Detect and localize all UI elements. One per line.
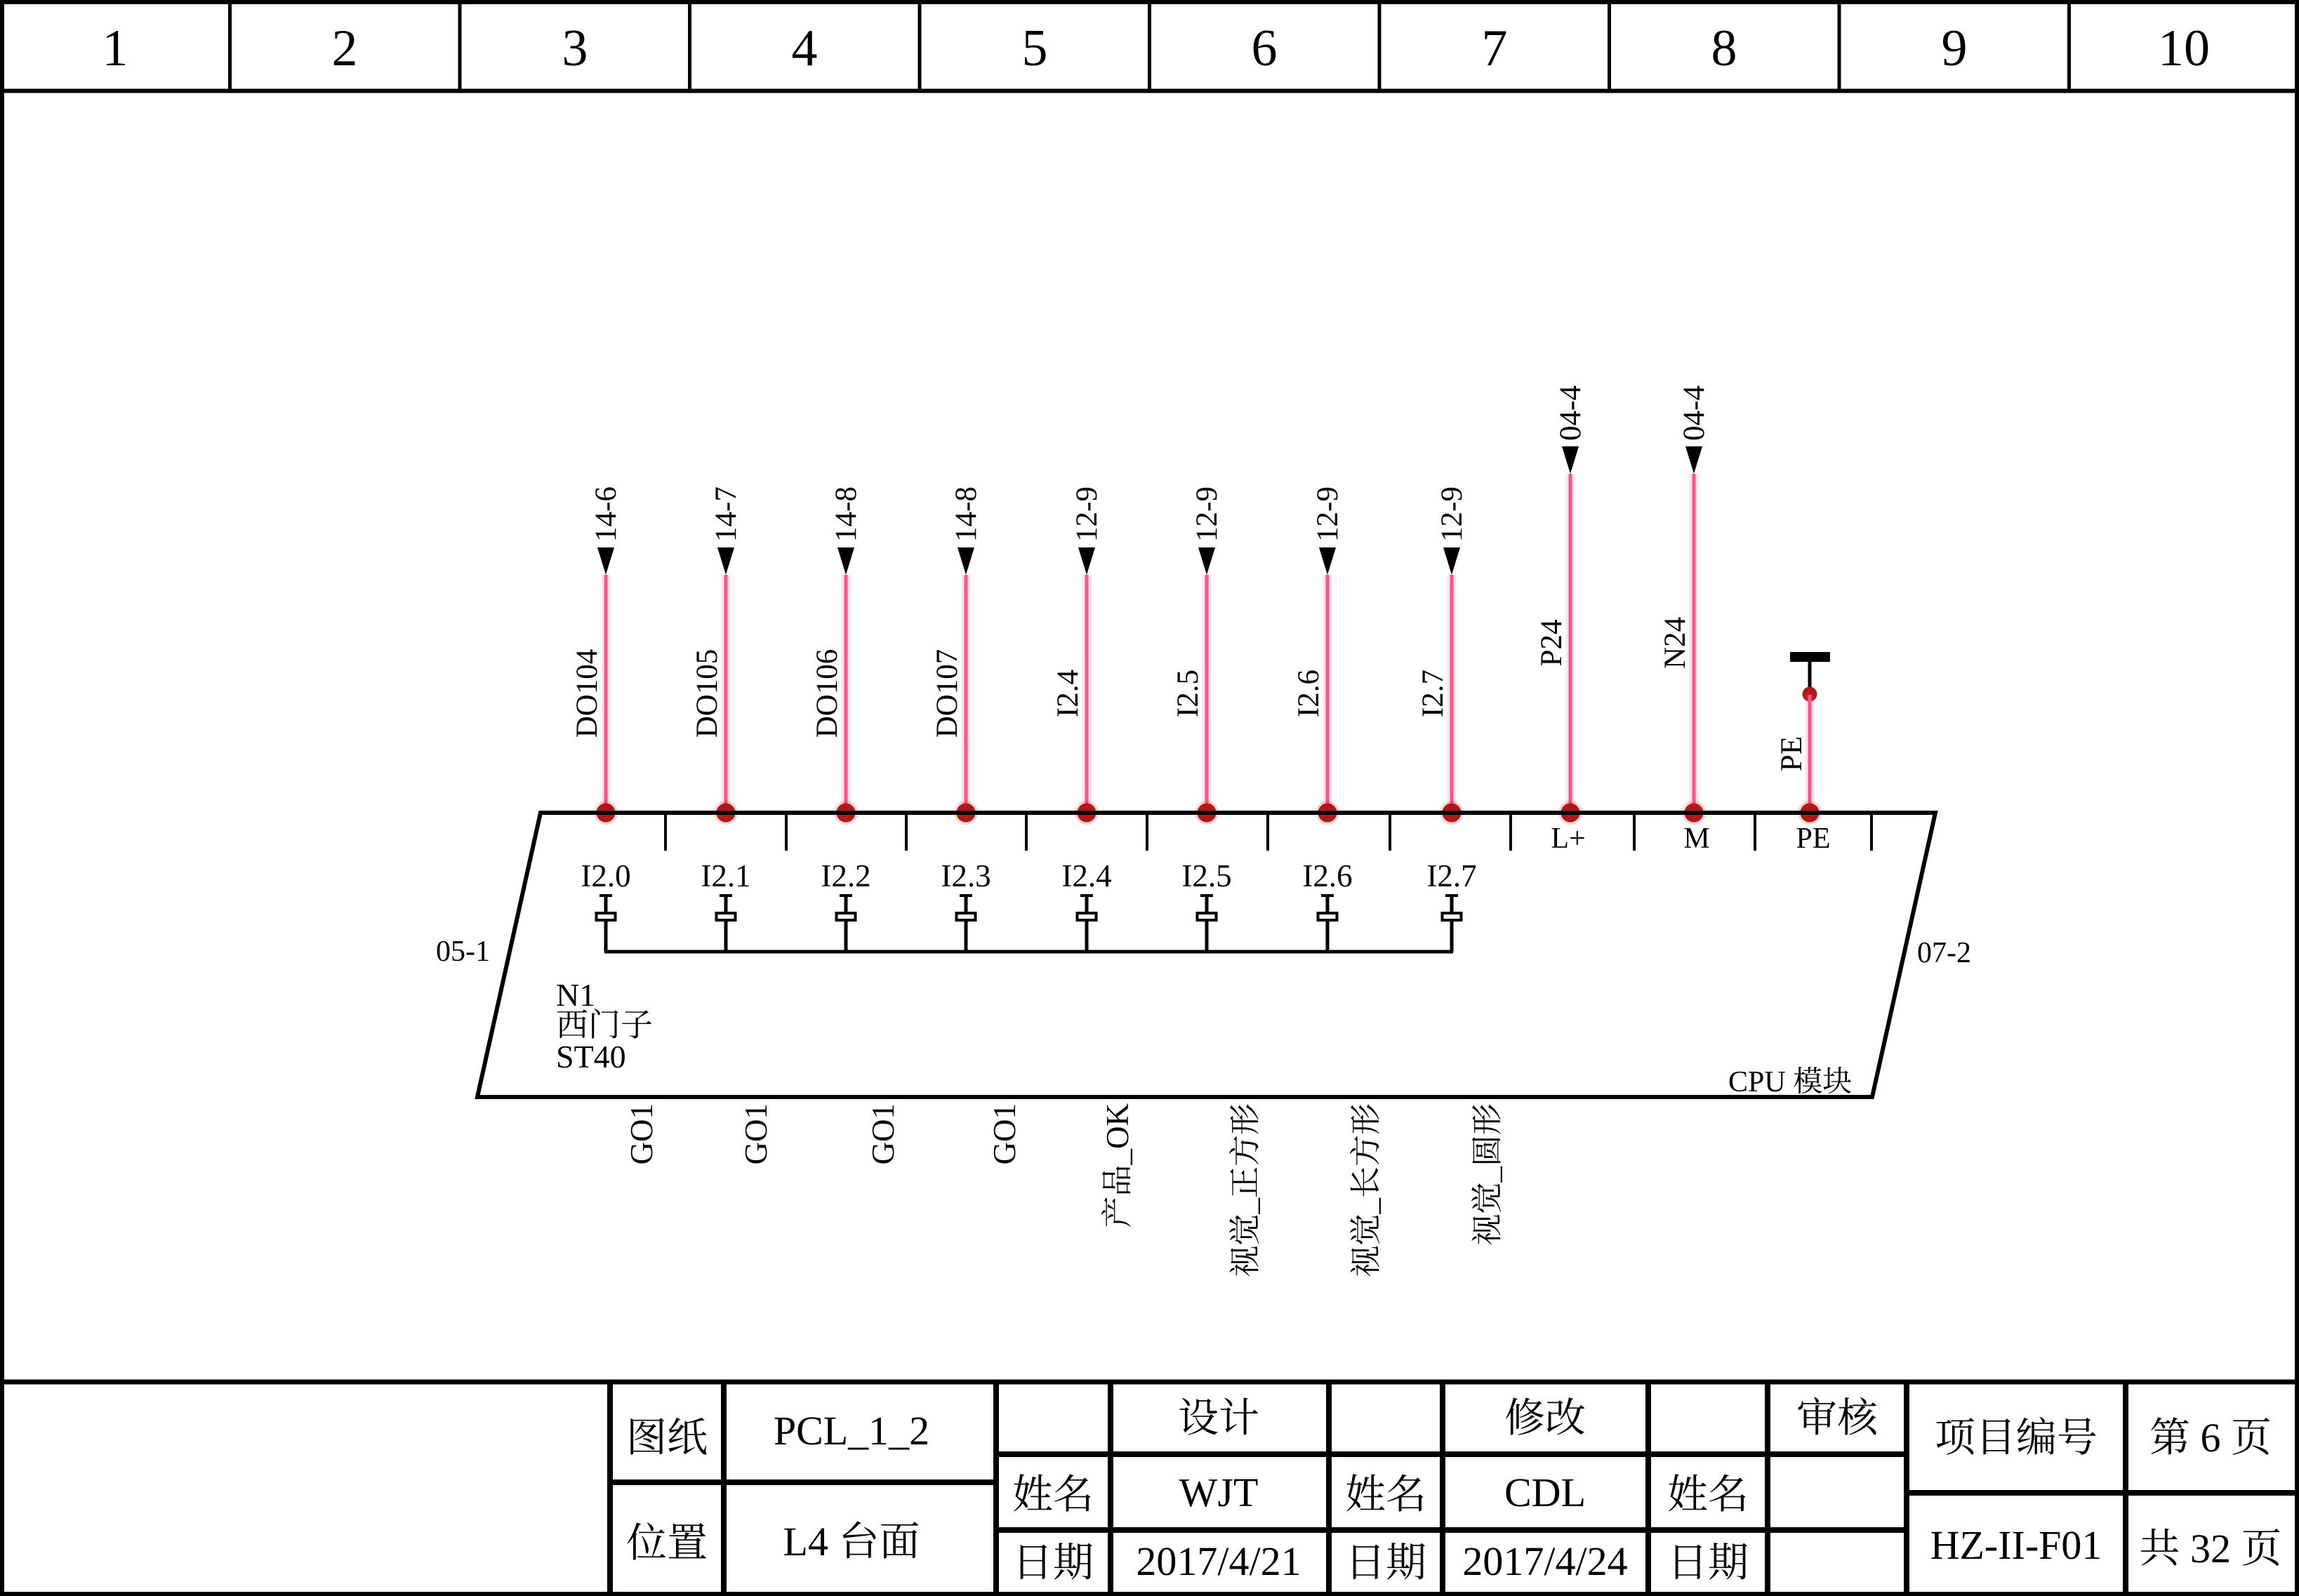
- svg-text:第 6 页: 第 6 页: [2149, 1415, 2272, 1461]
- svg-text:视觉_圆形: 视觉_圆形: [1470, 1103, 1505, 1246]
- svg-text:I2.5: I2.5: [1172, 670, 1205, 717]
- svg-text:I2.4: I2.4: [1052, 670, 1085, 717]
- svg-text:04-4: 04-4: [1678, 385, 1711, 441]
- svg-text:I2.2: I2.2: [821, 858, 870, 893]
- svg-text:12-9: 12-9: [1071, 486, 1104, 542]
- svg-text:1: 1: [102, 20, 128, 77]
- svg-text:产品_OK: 产品_OK: [1100, 1103, 1135, 1228]
- svg-text:14-6: 14-6: [590, 486, 623, 542]
- svg-text:2017/4/21: 2017/4/21: [1136, 1538, 1301, 1584]
- svg-text:视觉_正方形: 视觉_正方形: [1228, 1103, 1263, 1277]
- svg-text:日期: 日期: [1667, 1540, 1749, 1585]
- svg-text:7: 7: [1482, 20, 1508, 77]
- svg-text:P24: P24: [1535, 620, 1568, 667]
- svg-text:14-7: 14-7: [710, 486, 743, 542]
- svg-text:GO1: GO1: [624, 1103, 659, 1165]
- svg-text:GO1: GO1: [738, 1103, 774, 1165]
- svg-text:N24: N24: [1659, 617, 1692, 669]
- svg-text:GO1: GO1: [866, 1103, 901, 1165]
- svg-text:视觉_长方形: 视觉_长方形: [1349, 1103, 1384, 1277]
- svg-text:L+: L+: [1551, 823, 1585, 855]
- svg-text:DO107: DO107: [931, 649, 964, 738]
- svg-text:PE: PE: [1796, 823, 1830, 855]
- svg-text:审核: 审核: [1796, 1395, 1879, 1441]
- svg-text:姓名: 姓名: [1667, 1472, 1749, 1517]
- svg-text:07-2: 07-2: [1917, 937, 1971, 969]
- svg-text:12-9: 12-9: [1436, 486, 1469, 542]
- svg-text:设计: 设计: [1178, 1395, 1259, 1441]
- svg-text:10: 10: [2158, 20, 2210, 77]
- svg-text:姓名: 姓名: [1345, 1472, 1426, 1517]
- svg-text:CPU 模块: CPU 模块: [1728, 1066, 1852, 1098]
- svg-text:PCL_1_2: PCL_1_2: [774, 1408, 929, 1454]
- svg-text:HZ-II-F01: HZ-II-F01: [1930, 1522, 2102, 1568]
- svg-text:8: 8: [1711, 20, 1737, 77]
- svg-text:6: 6: [1252, 20, 1278, 77]
- svg-text:L4 台面: L4 台面: [783, 1519, 920, 1564]
- svg-text:I2.4: I2.4: [1061, 858, 1111, 893]
- svg-text:姓名: 姓名: [1012, 1472, 1094, 1517]
- svg-text:I2.3: I2.3: [941, 858, 991, 893]
- svg-text:05-1: 05-1: [436, 936, 490, 968]
- svg-text:2: 2: [332, 20, 358, 77]
- svg-text:ST40: ST40: [556, 1039, 626, 1075]
- svg-text:M: M: [1683, 823, 1709, 855]
- svg-text:I2.6: I2.6: [1302, 858, 1352, 893]
- svg-text:DO104: DO104: [571, 649, 604, 738]
- svg-text:PE: PE: [1775, 736, 1808, 771]
- svg-text:04-4: 04-4: [1554, 385, 1587, 441]
- svg-text:I2.0: I2.0: [581, 858, 630, 893]
- svg-text:14-8: 14-8: [950, 486, 983, 542]
- svg-text:DO106: DO106: [811, 649, 844, 738]
- svg-text:共 32 页: 共 32 页: [2139, 1526, 2281, 1571]
- svg-text:CDL: CDL: [1504, 1470, 1586, 1515]
- svg-text:4: 4: [792, 20, 818, 77]
- svg-text:位置: 位置: [626, 1520, 708, 1566]
- svg-text:12-9: 12-9: [1191, 486, 1224, 542]
- svg-text:日期: 日期: [1012, 1540, 1094, 1585]
- svg-text:I2.7: I2.7: [1426, 858, 1476, 893]
- svg-text:DO105: DO105: [691, 649, 724, 738]
- svg-text:WJT: WJT: [1179, 1470, 1259, 1515]
- svg-text:14-8: 14-8: [830, 486, 863, 542]
- svg-text:12-9: 12-9: [1311, 486, 1344, 542]
- svg-text:图纸: 图纸: [626, 1415, 708, 1461]
- svg-text:日期: 日期: [1345, 1540, 1426, 1585]
- svg-text:修改: 修改: [1504, 1395, 1586, 1441]
- svg-text:I2.6: I2.6: [1292, 670, 1325, 717]
- svg-text:I2.5: I2.5: [1181, 858, 1231, 893]
- svg-text:项目编号: 项目编号: [1935, 1415, 2098, 1461]
- svg-text:2017/4/24: 2017/4/24: [1462, 1538, 1627, 1584]
- svg-text:GO1: GO1: [987, 1103, 1022, 1165]
- svg-text:9: 9: [1942, 20, 1968, 77]
- svg-text:西门子: 西门子: [556, 1007, 653, 1043]
- svg-text:3: 3: [562, 20, 588, 77]
- svg-text:I2.7: I2.7: [1417, 670, 1450, 717]
- svg-text:5: 5: [1022, 20, 1048, 77]
- svg-text:I2.1: I2.1: [701, 858, 750, 893]
